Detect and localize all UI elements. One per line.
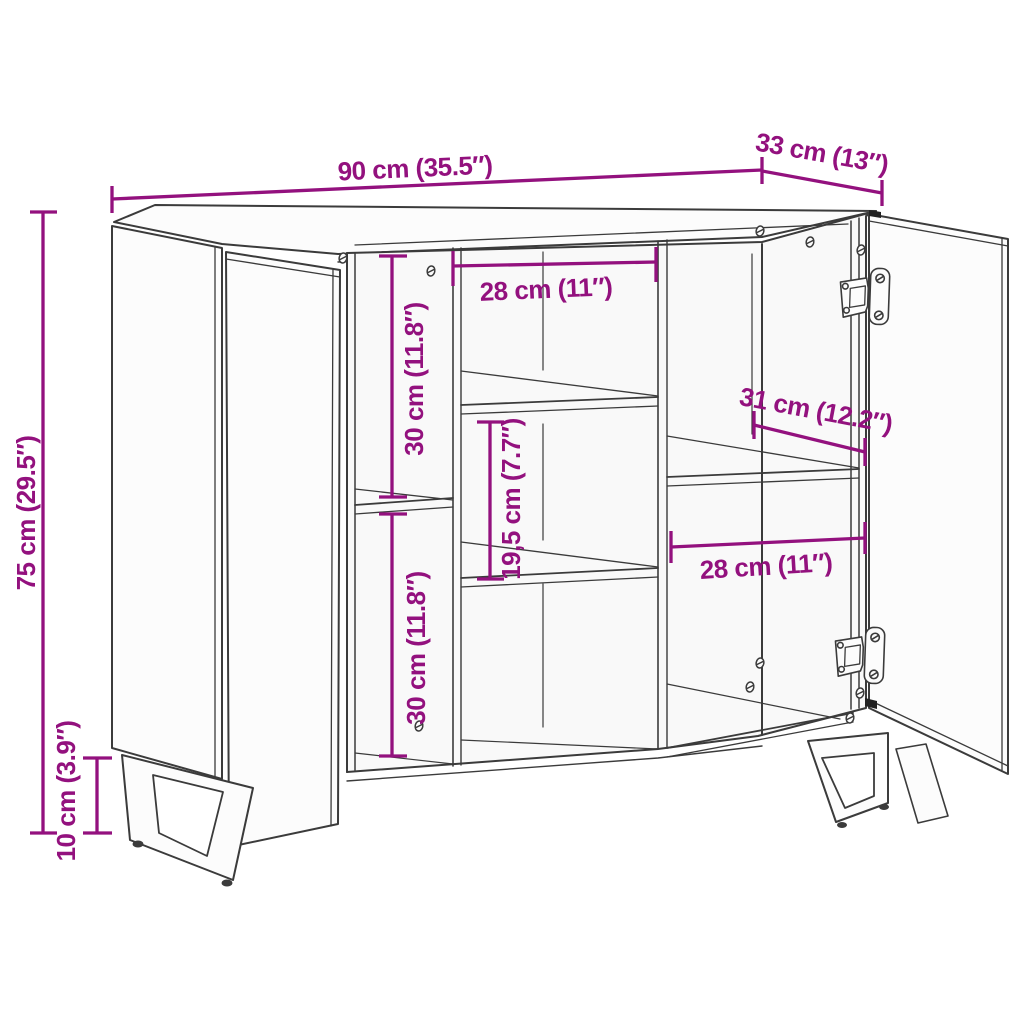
- sideboard-dimension-diagram: 90 cm (35.5″) 33 cm (13″) 75 cm (29.5″) …: [0, 0, 1024, 1024]
- leg-back-right: [896, 744, 948, 823]
- left-door: [226, 252, 340, 847]
- dim-depth-label: 33 cm (13″): [753, 127, 890, 180]
- dim-width-label: 90 cm (35.5″): [337, 150, 493, 187]
- leg-foot: [133, 841, 144, 848]
- dim-inner-width-middle-label: 28 cm (11″): [479, 271, 613, 307]
- cabinet-drawing: [112, 205, 1008, 887]
- leg-foot: [222, 880, 233, 887]
- dim-inner-height-middle-label: 19,5 cm (7.7″): [496, 418, 526, 580]
- leg-front-right: [808, 733, 889, 828]
- dim-leg-height-label: 10 cm (3.9″): [51, 721, 81, 862]
- leg-foot: [879, 804, 889, 810]
- dimension-diagram-page: 90 cm (35.5″) 33 cm (13″) 75 cm (29.5″) …: [0, 0, 1024, 1024]
- dim-width: 90 cm (35.5″): [112, 150, 762, 213]
- dim-leg-height: 10 cm (3.9″): [51, 721, 112, 862]
- left-side-panel: [112, 226, 222, 779]
- dim-inner-height-lower-label: 30 cm (11.8″): [401, 571, 431, 724]
- dim-height-label: 75 cm (29.5″): [11, 436, 41, 591]
- dim-depth: 33 cm (13″): [753, 127, 890, 206]
- dim-inner-height-upper-label: 30 cm (11.8″): [399, 302, 429, 455]
- leg-foot: [837, 822, 847, 828]
